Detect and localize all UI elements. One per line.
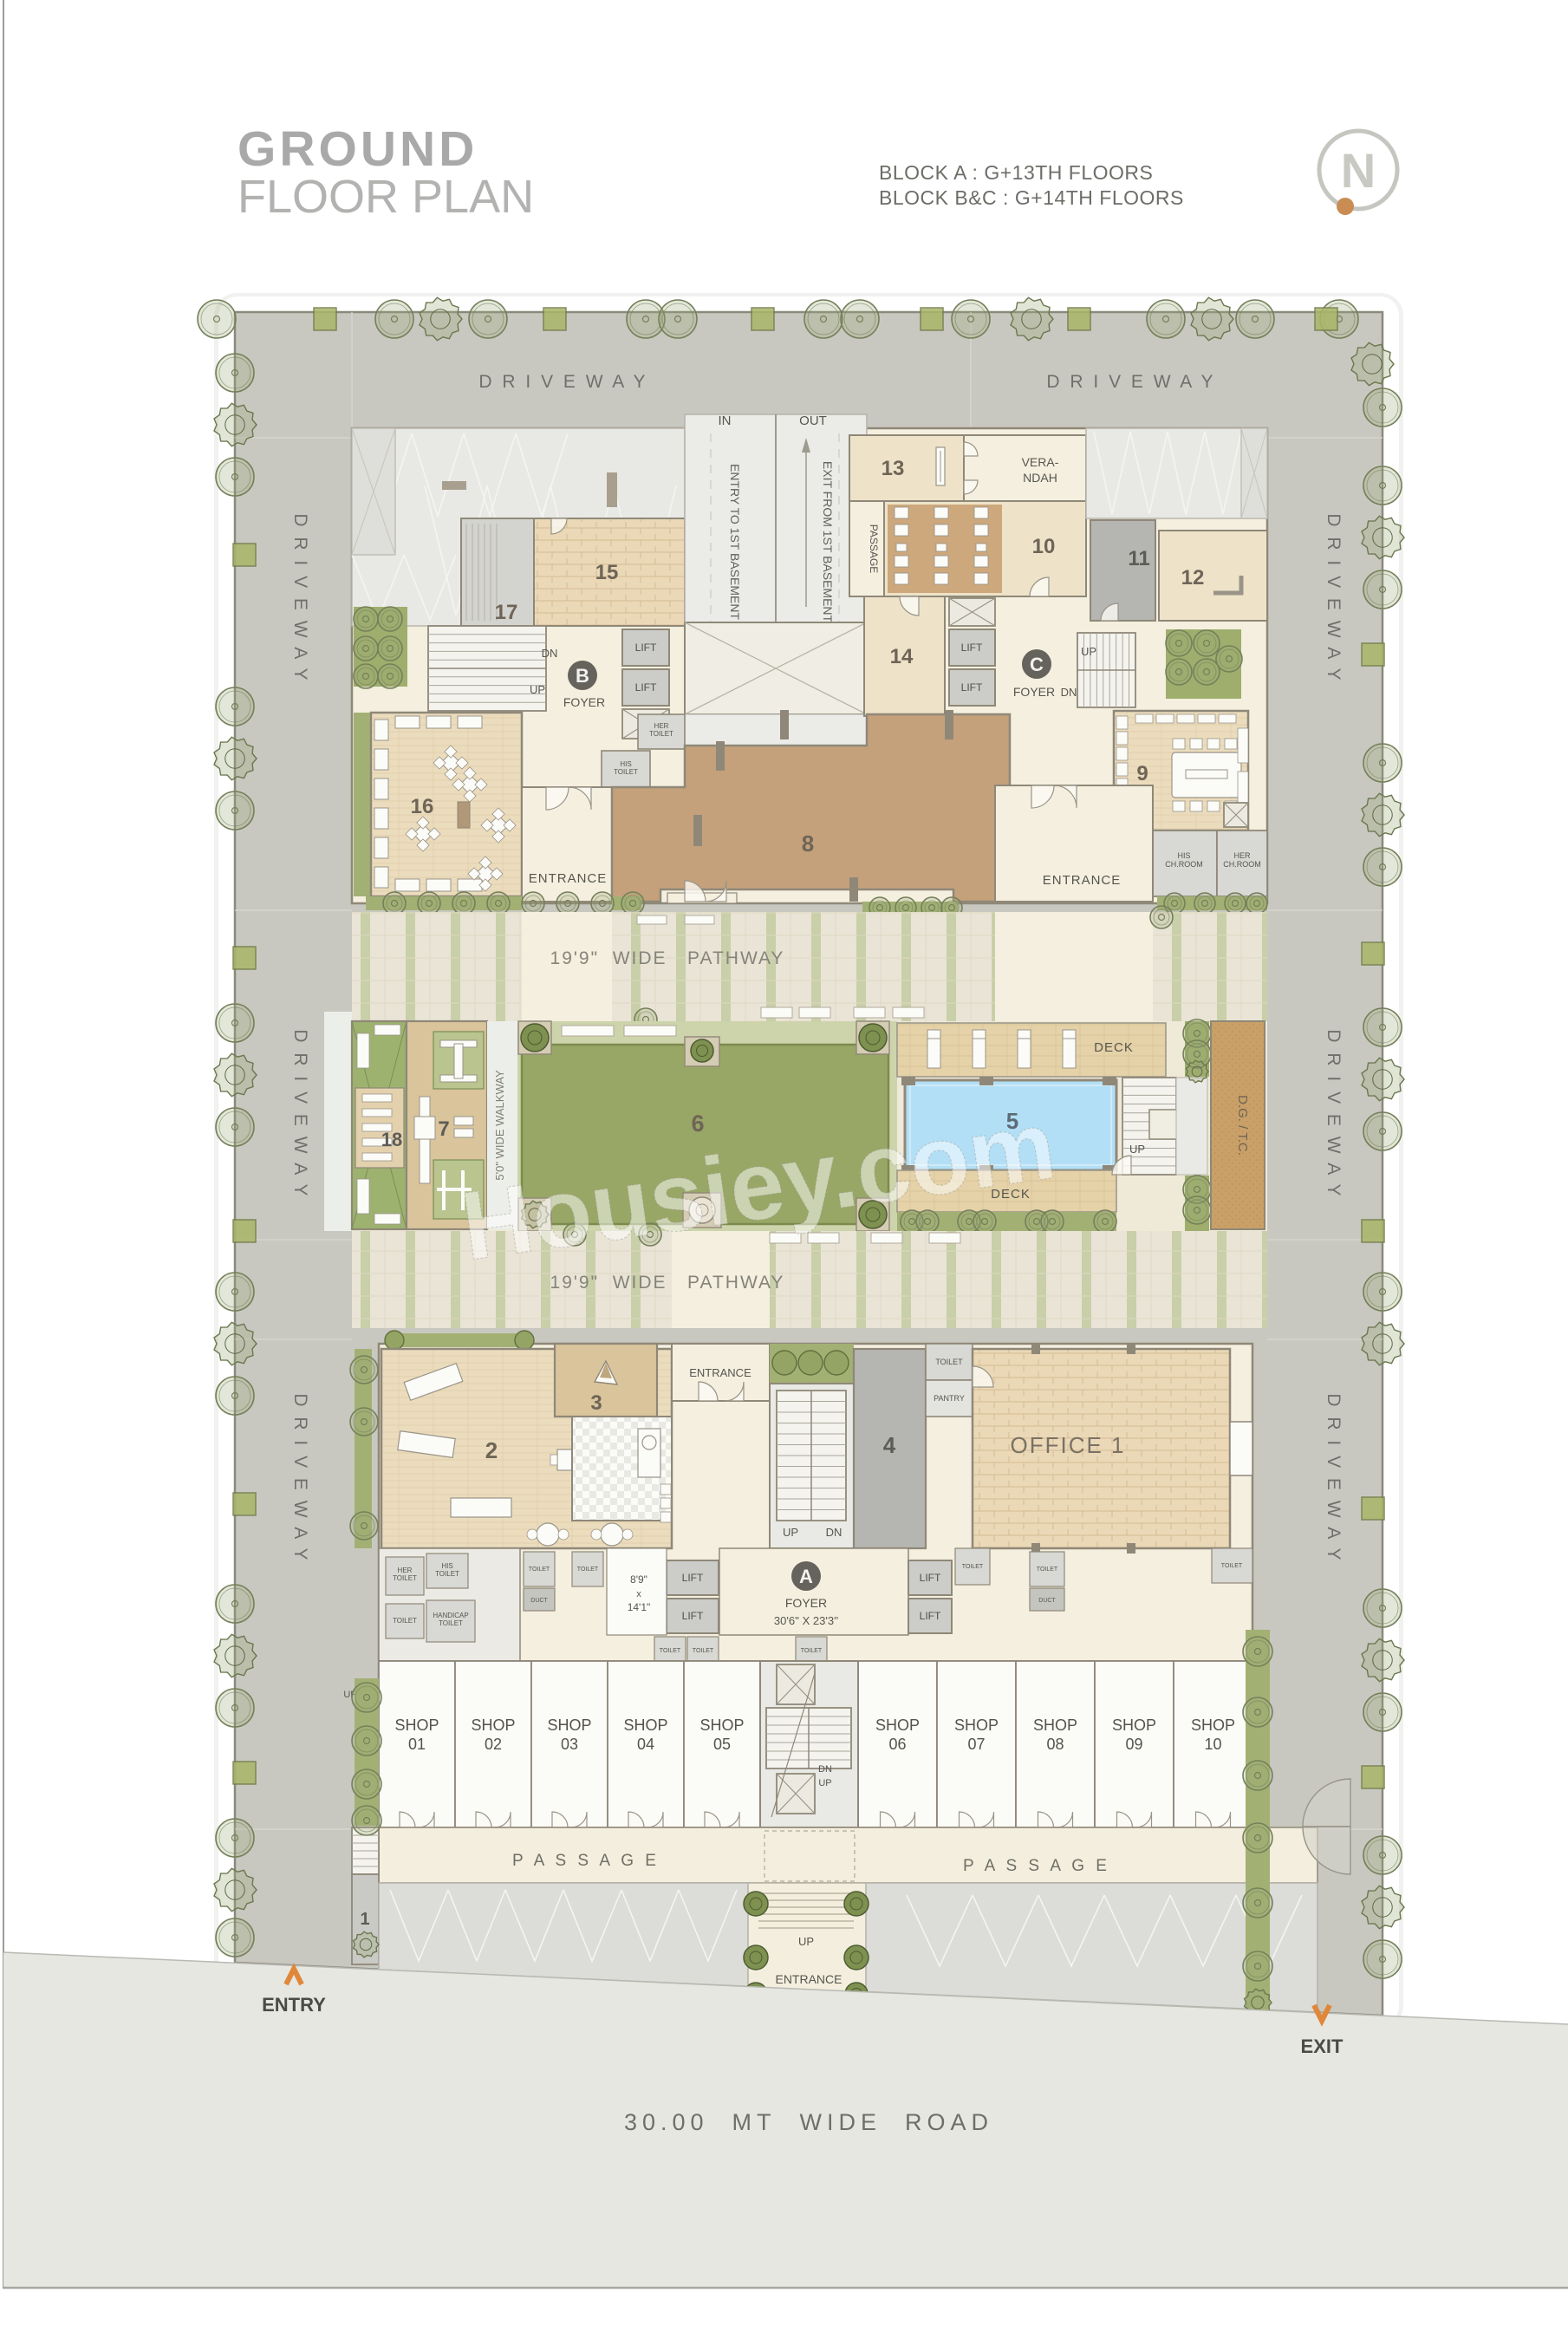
svg-text:TOILET: TOILET [393,1574,417,1582]
svg-text:DUCT: DUCT [530,1598,548,1604]
svg-text:TOILET: TOILET [439,1619,463,1627]
svg-text:13: 13 [882,457,905,480]
svg-text:02: 02 [485,1736,502,1753]
svg-text:14'1": 14'1" [628,1601,651,1613]
svg-text:19'9" WIDE PATHWAY: 19'9" WIDE PATHWAY [550,1273,785,1293]
svg-text:09: 09 [1125,1736,1142,1753]
svg-text:03: 03 [561,1736,578,1753]
svg-text:UP: UP [818,1778,831,1788]
svg-text:8'9": 8'9" [630,1573,647,1586]
svg-text:SHOP: SHOP [954,1716,999,1734]
svg-text:LIFT: LIFT [682,1610,704,1622]
svg-text:3: 3 [590,1391,602,1415]
svg-text:10: 10 [1032,535,1056,558]
svg-text:01: 01 [408,1736,426,1753]
svg-text:D R I V E W A Y: D R I V E W A Y [1046,372,1215,392]
svg-text:SHOP: SHOP [623,1716,667,1734]
svg-text:ENTRANCE: ENTRANCE [775,1972,842,1986]
svg-text:LIFT: LIFT [682,1572,704,1584]
svg-text:2: 2 [485,1437,498,1463]
svg-text:17: 17 [495,601,518,624]
svg-text:SHOP: SHOP [1112,1716,1156,1734]
svg-text:PANTRY: PANTRY [934,1394,965,1403]
svg-text:07: 07 [967,1736,985,1753]
svg-text:FLOOR PLAN: FLOOR PLAN [237,171,534,223]
svg-text:LIFT: LIFT [920,1572,941,1584]
svg-text:D R I V E W A Y: D R I V E W A Y [290,513,310,682]
svg-text:SHOP: SHOP [1033,1716,1077,1734]
svg-text:UP: UP [783,1526,798,1539]
svg-text:TOILET: TOILET [393,1617,417,1625]
svg-text:TOILET: TOILET [577,1567,599,1573]
svg-text:TOILET: TOILET [1037,1567,1058,1573]
svg-text:LIFT: LIFT [920,1610,941,1622]
svg-text:DN: DN [826,1526,843,1539]
svg-text:D R I V E W A Y: D R I V E W A Y [1324,513,1344,682]
svg-text:TOILET: TOILET [435,1570,459,1578]
svg-text:TOILET: TOILET [1221,1563,1243,1569]
svg-text:HIS: HIS [1177,851,1190,860]
svg-text:CH.ROOM: CH.ROOM [1223,860,1261,869]
svg-text:ENTRY: ENTRY [262,1994,326,2016]
svg-text:UP: UP [530,683,545,696]
svg-text:16: 16 [411,795,434,818]
svg-text:D R I V E W A Y: D R I V E W A Y [290,1393,310,1562]
svg-text:LIFT: LIFT [635,642,657,654]
svg-text:15: 15 [595,561,619,584]
svg-text:HER: HER [398,1567,413,1574]
svg-text:8: 8 [802,831,814,857]
svg-text:SHOP: SHOP [875,1716,920,1734]
svg-text:HIS: HIS [620,760,631,768]
svg-text:C: C [1030,654,1044,675]
svg-text:BLOCK B&C : G+14TH FLOORS: BLOCK B&C : G+14TH FLOORS [879,186,1184,209]
svg-text:DN: DN [1061,686,1077,699]
svg-text:5'0" WIDE WALKWAY: 5'0" WIDE WALKWAY [493,1070,506,1181]
svg-text:TOILET: TOILET [935,1358,963,1366]
svg-text:LIFT: LIFT [961,642,983,654]
svg-text:4: 4 [883,1432,896,1458]
svg-text:FOYER: FOYER [785,1596,827,1610]
svg-text:14: 14 [890,645,914,668]
svg-text:04: 04 [637,1736,654,1753]
svg-text:D.G. / T.C.: D.G. / T.C. [1235,1095,1250,1156]
svg-text:UP: UP [798,1935,814,1948]
svg-text:HIS: HIS [441,1562,452,1570]
svg-text:EXIT: EXIT [1301,2036,1344,2057]
svg-text:TOILET: TOILET [962,1564,984,1570]
svg-text:SHOP: SHOP [699,1716,744,1734]
svg-text:D R I V E W A Y: D R I V E W A Y [1324,1029,1344,1198]
svg-text:HER: HER [654,722,669,730]
svg-text:SHOP: SHOP [394,1716,439,1734]
svg-text:6: 6 [691,1111,704,1137]
svg-text:ENTRY TO 1ST BASEMENT: ENTRY TO 1ST BASEMENT [728,464,742,620]
svg-text:30'6'' X 23'3'': 30'6'' X 23'3'' [774,1614,838,1627]
svg-text:LIFT: LIFT [961,681,983,694]
svg-text:EXIT FROM 1ST BASEMENT: EXIT FROM 1ST BASEMENT [821,461,835,623]
svg-text:ENTRANCE: ENTRANCE [529,871,608,886]
svg-text:TOILET: TOILET [693,1648,714,1654]
svg-text:D R I V E W A Y: D R I V E W A Y [290,1029,310,1198]
svg-text:19'9" WIDE PATHWAY: 19'9" WIDE PATHWAY [550,948,785,968]
svg-text:18: 18 [381,1129,402,1150]
svg-text:A: A [799,1566,813,1587]
svg-text:TOILET: TOILET [614,768,638,776]
svg-text:TOILET: TOILET [529,1567,550,1573]
svg-text:06: 06 [888,1736,906,1753]
svg-text:GROUND: GROUND [237,121,478,177]
svg-text:LIFT: LIFT [635,681,657,694]
svg-text:FOYER: FOYER [563,695,605,709]
svg-text:TOILET: TOILET [649,730,673,738]
svg-text:HANDICAP: HANDICAP [433,1612,468,1619]
svg-text:B: B [576,665,589,687]
svg-text:D R I V E W A Y: D R I V E W A Y [478,372,647,392]
svg-text:P A S S A G E: P A S S A G E [512,1852,660,1870]
svg-text:FOYER: FOYER [1013,685,1055,699]
svg-text:SHOP: SHOP [471,1716,515,1734]
svg-text:NDAH: NDAH [1023,471,1057,485]
svg-text:ENTRANCE: ENTRANCE [689,1366,751,1379]
svg-text:CH.ROOM: CH.ROOM [1165,860,1203,869]
svg-text:DUCT: DUCT [1038,1598,1056,1604]
svg-text:7: 7 [438,1117,449,1141]
svg-text:05: 05 [713,1736,731,1753]
svg-text:08: 08 [1046,1736,1064,1753]
svg-text:ENTRANCE: ENTRANCE [1043,873,1122,888]
svg-text:OUT: OUT [799,414,827,428]
svg-text:SHOP: SHOP [547,1716,591,1734]
svg-text:D R I V E W A Y: D R I V E W A Y [1324,1393,1344,1562]
svg-text:HER: HER [1233,851,1251,860]
svg-text:VERA-: VERA- [1022,455,1059,469]
svg-text:9: 9 [1136,762,1148,785]
svg-text:TOILET: TOILET [801,1648,823,1654]
svg-text:DECK: DECK [1094,1040,1134,1055]
svg-text:PASSAGE: PASSAGE [868,524,880,573]
svg-text:N: N [1341,143,1376,198]
svg-text:SHOP: SHOP [1191,1716,1235,1734]
svg-text:UP: UP [1081,645,1096,658]
svg-text:12: 12 [1181,566,1205,590]
svg-text:x: x [636,1589,641,1599]
svg-text:1: 1 [360,1910,369,1929]
svg-text:P A S S A G E: P A S S A G E [963,1857,1110,1875]
svg-text:30.00 MT WIDE ROAD: 30.00 MT WIDE ROAD [624,2109,993,2135]
svg-text:11: 11 [1128,547,1149,570]
svg-text:UP: UP [1129,1143,1145,1156]
svg-text:BLOCK A : G+13TH FLOORS: BLOCK A : G+13TH FLOORS [879,161,1153,184]
svg-text:OFFICE 1: OFFICE 1 [1010,1432,1125,1458]
svg-text:10: 10 [1204,1736,1221,1753]
svg-text:TOILET: TOILET [660,1648,681,1654]
svg-text:IN: IN [719,414,732,428]
svg-text:DN: DN [542,647,558,660]
svg-text:DN: DN [818,1764,832,1775]
